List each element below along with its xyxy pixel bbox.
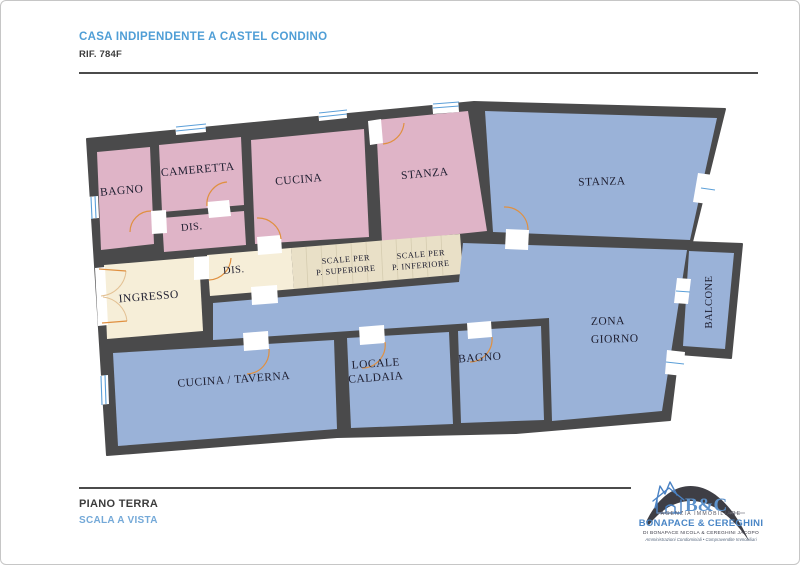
label-dis2: DIS.: [223, 264, 245, 277]
opening-cameretta: [207, 200, 231, 218]
room-bagno1: [97, 147, 154, 250]
logo-subline: DI BONAPACE NICOLA & CEREGHINI JACOPO: [643, 530, 759, 536]
window-balcone-upper: [674, 278, 691, 304]
svg-text:GIORNO: GIORNO: [591, 333, 639, 346]
footer-divider: [79, 487, 631, 489]
label-dis1: DIS.: [181, 221, 203, 234]
label-stanza2: STANZA: [578, 175, 626, 188]
room-dis1: [162, 211, 246, 252]
agency-logo: B&C AGENZIA IMMOBILIARE BONAPACE & CEREG…: [639, 482, 764, 542]
room-bagno2: [458, 326, 544, 423]
opening-locale-caldaia: [359, 325, 385, 345]
floor-name: PIANO TERRA: [79, 498, 158, 510]
opening-dis2-corridoio: [251, 285, 278, 305]
label-balcone: BALCONE: [704, 275, 715, 328]
opening-cucina: [257, 235, 282, 255]
svg-text:ZONA: ZONA: [591, 315, 625, 328]
opening-cucina-taverna: [243, 331, 269, 351]
room-cucina-taverna: [113, 340, 337, 446]
floorplan-svg: BAGNO CAMERETTA DIS. CUCINA STANZA STANZ…: [1, 1, 799, 564]
label-locale-caldaia: LOCALE CALDAIA: [348, 356, 404, 386]
window-bagno1: [87, 196, 99, 219]
opening-stanza1: [368, 119, 383, 145]
page-title: CASA INDIPENDENTE A CASTEL CONDINO: [79, 31, 327, 43]
window-balcone-lower: [665, 350, 685, 376]
reference-number: RIF. 784F: [79, 49, 122, 60]
opening-ingresso-dis2: [194, 256, 209, 280]
logo-company: BONAPACE & CEREGHINI: [639, 518, 764, 529]
window-cucina-taverna: [97, 375, 109, 405]
room-dis2: [207, 248, 294, 296]
logo-tagline: AGENZIA IMMOBILIARE: [661, 511, 742, 517]
opening-stanza2: [505, 229, 529, 250]
opening-bagno1: [151, 210, 167, 234]
room-cucina: [251, 129, 369, 244]
header-divider: [79, 72, 758, 74]
opening-bagno2: [467, 321, 492, 339]
page: BAGNO CAMERETTA DIS. CUCINA STANZA STANZ…: [0, 0, 800, 565]
logo-services: Amministrazioni Condominiali • Compraven…: [644, 537, 757, 542]
floor-note: SCALA A VISTA: [79, 515, 158, 526]
window-stanza1: [432, 98, 459, 114]
